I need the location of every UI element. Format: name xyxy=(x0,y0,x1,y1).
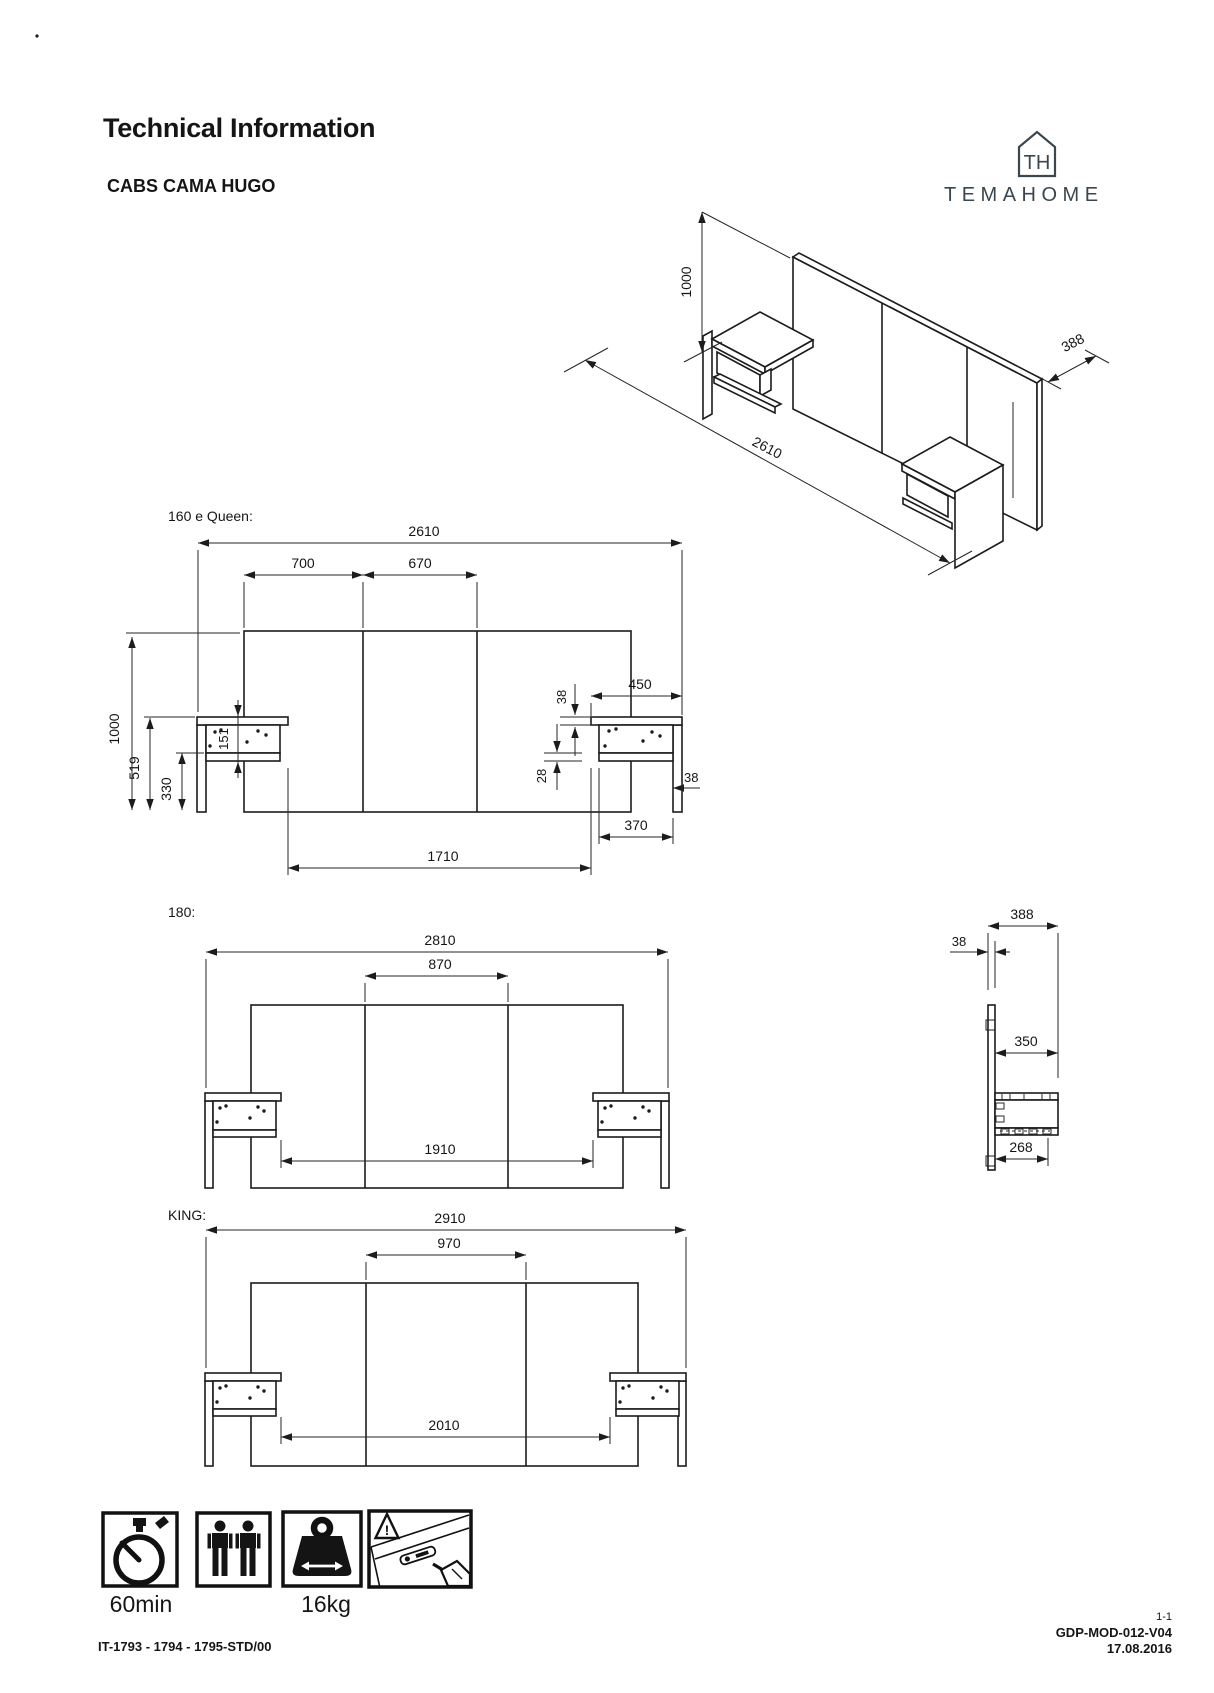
side-nightstand-depth-dim: 350 xyxy=(1014,1033,1038,1049)
logo-wordmark: TEMAHOME xyxy=(944,184,1104,206)
max-weight-icon: max. xyxy=(283,1512,361,1586)
queen-inner-span-dim: 1710 xyxy=(427,848,458,864)
footer-doc-code: GDP-MOD-012-V04 xyxy=(1056,1625,1173,1640)
queen-title: 160 e Queen: xyxy=(168,508,253,524)
technical-sheet-page: Technical Information CABS CAMA HUGO TH … xyxy=(0,0,1214,1693)
queen-plate-thickness-dim: 38 xyxy=(554,690,569,704)
assembly-time-icon xyxy=(103,1513,177,1586)
queen-shelf-width-dim: 370 xyxy=(624,817,648,833)
queen-total-dim: 2610 xyxy=(408,523,439,539)
scan-artifact-dot xyxy=(35,34,38,37)
queen-shelf-gap-dim: 28 xyxy=(534,769,549,783)
queen-leg-thickness-dim: 38 xyxy=(684,770,698,785)
wall-fixing-icon: ! xyxy=(369,1511,471,1588)
side-total-depth-dim: 388 xyxy=(1010,906,1034,922)
pictogram-row: 60min xyxy=(103,1511,471,1617)
footer-reference: IT-1793 - 1794 - 1795-STD/00 xyxy=(98,1639,271,1654)
iso-right-nightstand xyxy=(902,437,1003,568)
king-view: KING: 2910 xyxy=(168,1207,686,1466)
warning-exclamation: ! xyxy=(385,1522,390,1538)
max-weight-label: 16kg xyxy=(301,1591,351,1617)
iso-depth-dim: 388 xyxy=(1059,330,1087,355)
queen-panel xyxy=(244,631,631,812)
view-180: 180: 2810 xyxy=(168,904,669,1188)
queen-nightstand-height-dim: 519 xyxy=(126,756,142,780)
iso-height-dim: 1000 xyxy=(678,266,694,297)
footer-sheet-number: 1-1 xyxy=(1156,1611,1172,1623)
king-title: KING: xyxy=(168,1207,206,1223)
king-mid-dim: 970 xyxy=(437,1235,461,1251)
queen-shelf-clearance-dim: 330 xyxy=(158,777,174,801)
king-panel xyxy=(251,1283,638,1466)
view-180-total-dim: 2810 xyxy=(424,932,455,948)
view-180-title: 180: xyxy=(168,904,195,920)
page-title: Technical Information xyxy=(103,113,375,143)
logo-monogram: TH xyxy=(1024,152,1051,174)
side-view: 388 38 350 268 xyxy=(950,906,1058,1170)
product-title: CABS CAMA HUGO xyxy=(107,176,275,196)
king-inner-span-dim: 2010 xyxy=(428,1417,459,1433)
iso-length-dim: 2610 xyxy=(750,433,785,462)
side-panel-thickness-dim: 38 xyxy=(952,934,966,949)
drawing-canvas: Technical Information CABS CAMA HUGO TH … xyxy=(0,0,1214,1693)
footer-date: 17.08.2016 xyxy=(1107,1641,1172,1656)
assembly-time-label: 60min xyxy=(110,1591,173,1617)
side-shelf-depth-dim: 268 xyxy=(1009,1139,1033,1155)
isometric-view: 1000 2610 388 xyxy=(564,212,1109,575)
view-180-inner-span-dim: 1910 xyxy=(424,1141,455,1157)
temahome-logo: TH TEMAHOME xyxy=(944,132,1104,206)
two-person-assembly-icon xyxy=(197,1513,270,1586)
queen-height-dim: 1000 xyxy=(106,713,122,744)
queen-left-section-dim: 700 xyxy=(291,555,315,571)
queen-mid-section-dim: 670 xyxy=(408,555,432,571)
queen-box-height-dim: 151 xyxy=(216,728,231,750)
max-label: max. xyxy=(306,1545,338,1561)
queen-view: 160 e Queen: 26 xyxy=(106,508,700,875)
queen-nightstand-width-dim: 450 xyxy=(628,676,652,692)
view-180-mid-dim: 870 xyxy=(428,956,452,972)
king-total-dim: 2910 xyxy=(434,1210,465,1226)
